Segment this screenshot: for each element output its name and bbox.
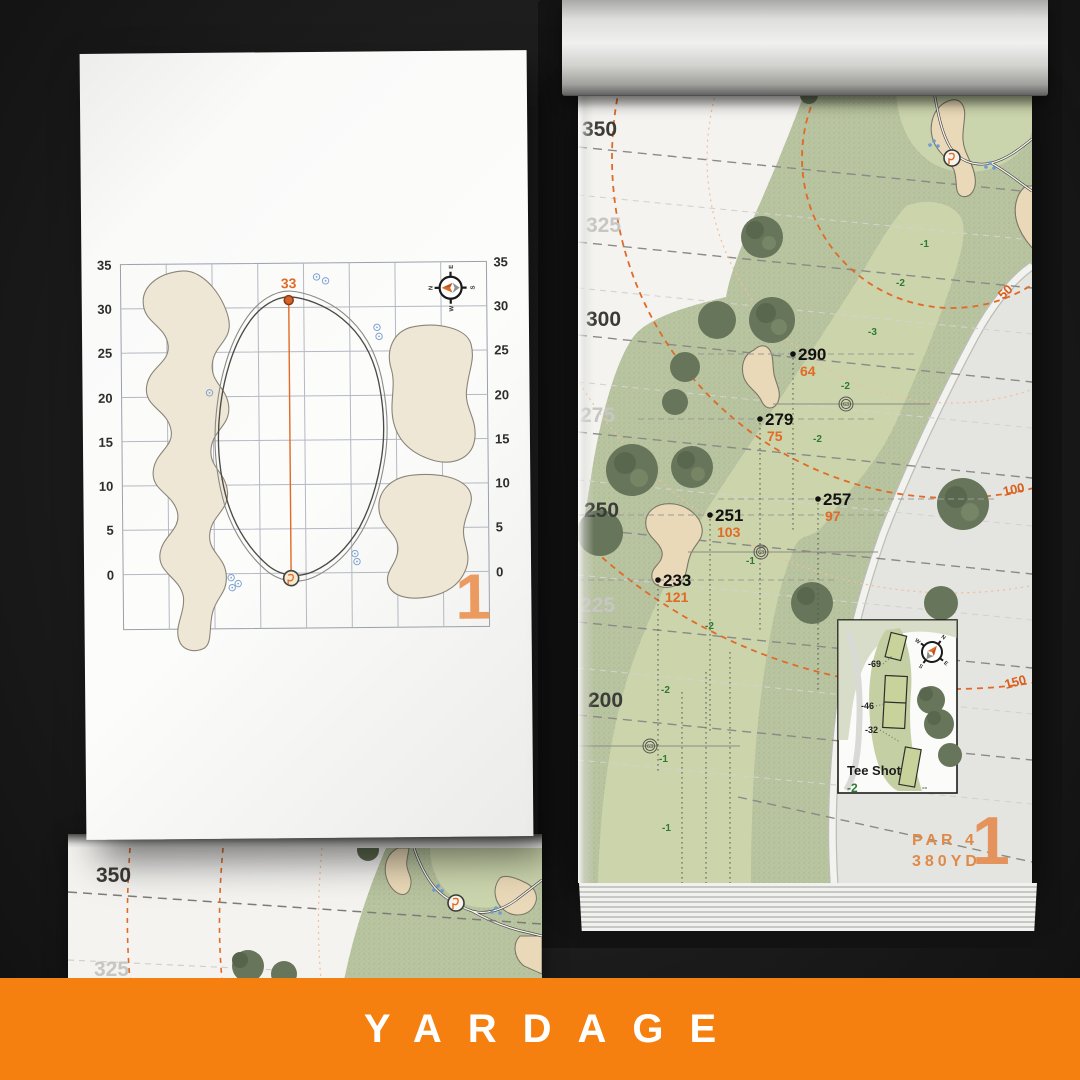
svg-text:-1: -1 [662, 823, 671, 834]
svg-text:64: 64 [800, 363, 816, 379]
compass-icon: N E S W [428, 265, 476, 312]
svg-text:S: S [471, 286, 477, 290]
tee-shot-title: Tee Shot [847, 763, 902, 778]
hole-map: 63 63 63 -1-2 -3-2 -2-1 -2-2 -1-1 350 32… [578, 92, 1032, 883]
svg-text:-2: -2 [661, 685, 670, 696]
green-outline [214, 290, 389, 582]
svg-text:-2: -2 [705, 621, 714, 632]
pin-line [289, 303, 291, 571]
svg-text:0: 0 [496, 564, 503, 579]
svg-text:0: 0 [107, 568, 114, 583]
svg-text:-1: -1 [746, 556, 755, 567]
flag-marker [448, 895, 464, 911]
svg-text:-32: -32 [865, 725, 878, 735]
svg-text:-1: -1 [920, 239, 929, 250]
svg-text:97: 97 [825, 508, 841, 524]
svg-text:-69: -69 [868, 659, 881, 669]
green-chart-page: 3530 2520 1510 50 3530 2520 1510 50 33 [80, 50, 534, 840]
yardage-arcs [127, 848, 322, 980]
svg-text:35: 35 [493, 254, 508, 269]
hole-number: 1 [972, 803, 1010, 879]
green-chart: 3530 2520 1510 50 3530 2520 1510 50 33 [80, 50, 534, 840]
hole-marker [284, 571, 299, 586]
page-curl-highlight [578, 92, 594, 883]
distance-label-350: 350 [96, 864, 131, 887]
tee-shot-slope: -2 [847, 781, 858, 795]
svg-text:15: 15 [495, 431, 510, 446]
svg-text:N: N [429, 286, 435, 290]
svg-text:30: 30 [97, 302, 112, 317]
svg-text:5: 5 [496, 519, 503, 534]
svg-text:-2: -2 [813, 434, 822, 445]
svg-text:63: 63 [843, 402, 849, 408]
svg-text:251: 251 [715, 506, 743, 525]
svg-text:10: 10 [495, 475, 510, 490]
svg-text:279: 279 [765, 410, 793, 429]
svg-text:35: 35 [97, 258, 112, 273]
svg-text:-46: -46 [861, 701, 874, 711]
bunkers [143, 268, 477, 651]
svg-text:257: 257 [823, 490, 851, 509]
svg-text:20: 20 [495, 387, 510, 402]
hole-map-page: 63 63 63 -1-2 -3-2 -2-1 -2-2 -1-1 350 32… [578, 92, 1032, 883]
par-label: PAR 4 [912, 832, 978, 849]
svg-text:W: W [449, 306, 455, 312]
svg-text:5: 5 [106, 523, 113, 538]
svg-text:-3: -3 [868, 327, 877, 338]
svg-text:15: 15 [98, 435, 113, 450]
sprinkler-dots [205, 273, 384, 591]
svg-text:121: 121 [665, 589, 689, 605]
svg-text:25: 25 [494, 342, 509, 357]
hole-number: 1 [455, 560, 491, 632]
title-banner: YARDAGE [0, 978, 1080, 1080]
back-page-map: 350 325 [68, 848, 542, 980]
axis-labels-right: 3530 2520 1510 50 [493, 254, 510, 579]
svg-text:25: 25 [98, 346, 113, 361]
pin-dot [284, 296, 293, 305]
svg-text:-2: -2 [841, 381, 850, 392]
svg-text:63: 63 [647, 744, 653, 750]
tee-shot-inset: -69 -46 -32 Tee Shot -2 -- N [838, 620, 962, 795]
svg-text:20: 20 [98, 391, 113, 406]
svg-text:30: 30 [494, 298, 509, 313]
svg-text:290: 290 [798, 345, 826, 364]
axis-labels-left: 3530 2520 1510 50 [97, 258, 114, 583]
banner-title: YARDAGE [338, 1007, 742, 1052]
back-page: 350 325 [68, 834, 542, 980]
flag-marker [944, 150, 960, 166]
svg-text:10: 10 [99, 479, 114, 494]
pin-distance: 33 [281, 275, 297, 291]
svg-text:233: 233 [663, 571, 691, 590]
svg-text:E: E [449, 265, 455, 269]
page-stack-edge [579, 883, 1037, 931]
svg-text:63: 63 [758, 550, 764, 556]
flipped-page-roll [562, 0, 1048, 96]
svg-text:103: 103 [717, 524, 741, 540]
svg-text:75: 75 [767, 428, 783, 444]
svg-text:-2: -2 [896, 278, 905, 289]
sprinkler-dot-centers [208, 275, 383, 588]
tee-dash-mark: -- [922, 783, 928, 792]
distance-label-325: 325 [94, 958, 129, 980]
yardage-label: 380YD [912, 853, 981, 870]
svg-text:-1: -1 [659, 754, 668, 765]
